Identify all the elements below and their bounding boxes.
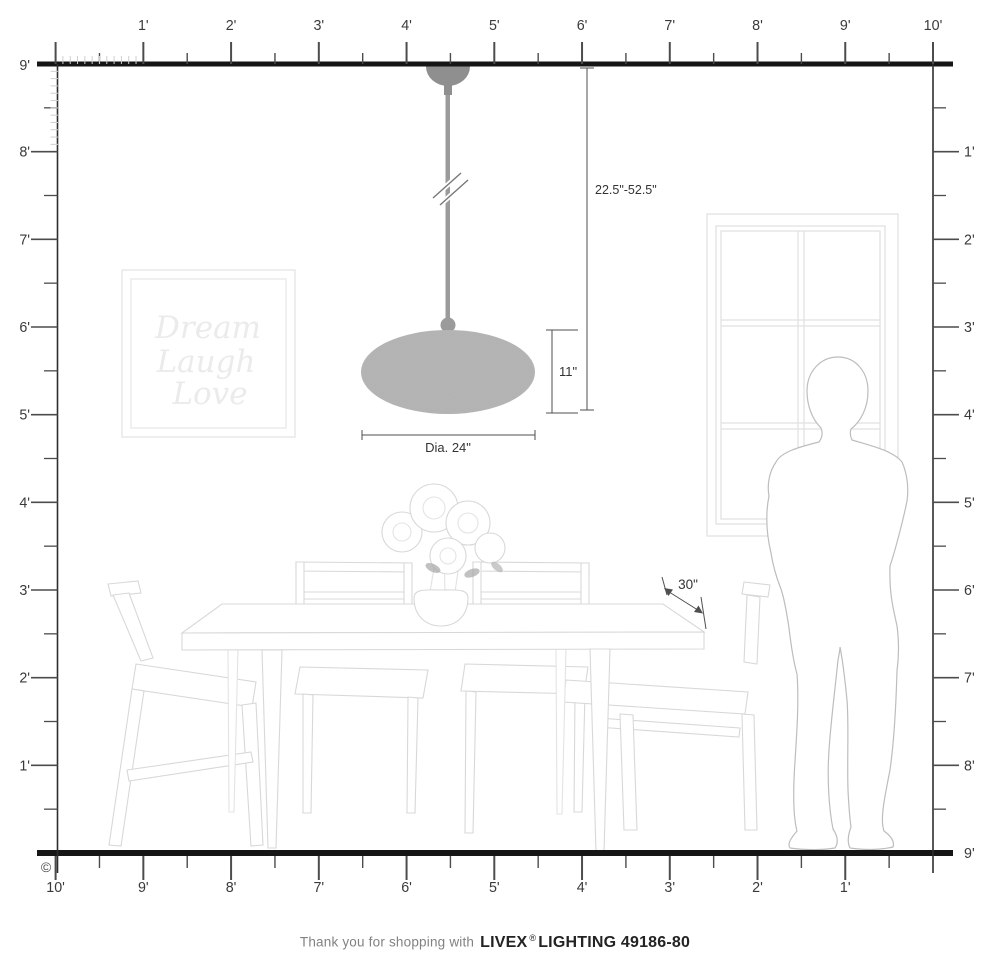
ruler-label: 4': [401, 18, 412, 34]
back-chair-left: [296, 562, 412, 606]
ruler-label: 9': [138, 880, 149, 896]
ruler-label: 6': [401, 880, 412, 896]
person-silhouette: [767, 357, 908, 850]
ruler-label: 5': [489, 880, 500, 896]
registered-mark-icon: ®: [529, 933, 536, 943]
pendant-canopy: [426, 67, 470, 87]
ruler-label: 4': [577, 880, 588, 896]
picture-frame: Dream Laugh Love: [122, 270, 295, 437]
ruler-label: 10': [924, 18, 943, 34]
dining-set: [108, 484, 770, 852]
ruler-label: 6': [19, 320, 30, 336]
ruler-label: 7': [964, 671, 975, 687]
ruler-label: 7': [664, 18, 675, 34]
ruler-label: 3': [313, 18, 324, 34]
dimension-fixture-height: 11": [546, 330, 578, 413]
wall-art-line3: Love: [171, 376, 247, 412]
ruler-label: 7': [313, 880, 324, 896]
ruler-label: 2': [19, 671, 30, 687]
caption-model: LIGHTING 49186-80: [538, 934, 690, 951]
arrowhead: [664, 588, 673, 596]
dimension-hanging-height: 22.5"-52.5": [580, 68, 657, 410]
rod-break-mark: [440, 180, 468, 205]
ruler-label: 2': [226, 18, 237, 34]
ruler-label: 9': [964, 846, 975, 862]
copyright-symbol: ©: [41, 859, 52, 875]
thank-you-caption: Thank you for shopping withLIVEX®LIGHTIN…: [0, 933, 990, 952]
flower: [475, 533, 505, 563]
ruler-label: 5': [489, 18, 500, 34]
dimension-diameter: Dia. 24": [362, 430, 535, 455]
table-leg-front-left: [262, 650, 282, 848]
diameter-label: Dia. 24": [425, 440, 471, 455]
ruler-label: 5': [19, 408, 30, 424]
canopy-stem: [444, 84, 452, 95]
pendant-shade-texture: [358, 327, 540, 419]
caption-prefix: Thank you for shopping with: [300, 935, 474, 950]
ruler-label: 1': [840, 880, 851, 896]
ruler-label: 2': [964, 232, 975, 248]
ruler-label: 8': [964, 758, 975, 774]
ruler-label: 3': [664, 880, 675, 896]
ruler-label: 4': [19, 495, 30, 511]
ruler-label: 1': [964, 145, 975, 161]
ruler-label: 3': [19, 583, 30, 599]
table-edge: [182, 632, 704, 650]
ruler-label: 2': [752, 880, 763, 896]
ruler-label: 6': [577, 18, 588, 34]
pendant-fixture: [358, 67, 540, 420]
ruler-label: 9': [840, 18, 851, 34]
scene: Dream Laugh Love: [0, 0, 990, 976]
table-depth-label: 30": [678, 577, 698, 592]
ruler-label: 8': [752, 18, 763, 34]
ruler-label: 10': [46, 880, 65, 896]
ruler-label: 6': [964, 583, 975, 599]
table-leg-back-left: [228, 649, 238, 812]
wall-art-line1: Dream: [154, 310, 261, 346]
fixture-height-label: 11": [559, 364, 577, 379]
ruler-label: 8': [226, 880, 237, 896]
ruler-label: 7': [19, 232, 30, 248]
chair-front-left: [295, 667, 428, 813]
arrowhead: [694, 606, 703, 614]
ruler-label: 8': [19, 145, 30, 161]
hanging-height-label: 22.5"-52.5": [595, 183, 657, 197]
caption-brand: LIVEX: [480, 934, 527, 951]
back-chair-right: [473, 562, 589, 606]
wall-art-line2: Laugh: [156, 344, 256, 380]
ruler-label: 9': [19, 58, 30, 74]
ruler-label: 3': [964, 320, 975, 336]
ruler-label: 5': [964, 495, 975, 511]
ruler-label: 4': [964, 408, 975, 424]
ruler-label: 1': [19, 758, 30, 774]
ruler-label: 1': [138, 18, 149, 34]
table-leg-back-right: [556, 649, 566, 814]
table-leg-front-right: [590, 649, 610, 852]
